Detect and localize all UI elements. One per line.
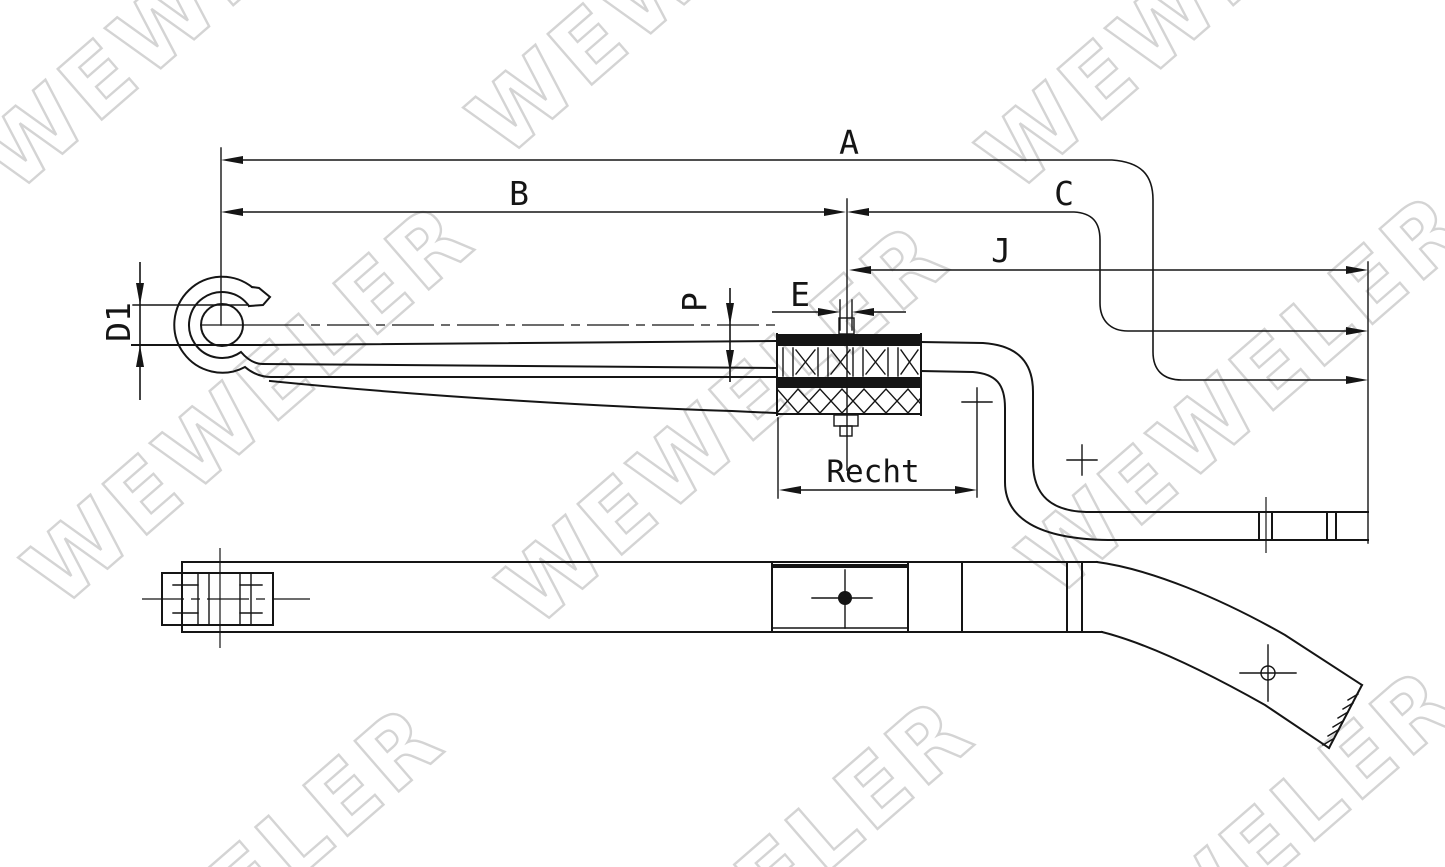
watermark-text: WEWELER — [999, 171, 1445, 617]
plan-center-bolt — [812, 570, 872, 628]
technical-drawing: WEWELER WEWELER WEWELER WEWELER WEWELER … — [0, 0, 1445, 867]
watermark-text: WEWELER — [4, 181, 494, 627]
dimension-label-e: E — [790, 275, 810, 314]
seat-top-plate — [776, 334, 922, 346]
plan-rear-hole — [1240, 645, 1296, 701]
dimension-label-a: A — [839, 123, 859, 162]
dimension-label-d1: D1 — [99, 302, 138, 342]
dimension-label-b: B — [509, 174, 529, 213]
blade-top-edge — [132, 341, 775, 345]
watermark-text: WEWELER — [959, 0, 1445, 212]
watermark-text: WEWELER — [449, 0, 939, 177]
bottom-view — [142, 548, 1362, 748]
rear-clamp-lines — [1259, 512, 1336, 540]
dimension-label-recht: Recht — [826, 454, 919, 490]
watermark-text: WEWELER — [0, 0, 449, 212]
watermark-text: WEWELER — [479, 201, 969, 647]
watermark-text: WEWELER — [0, 683, 464, 867]
drawing-page: WEWELER WEWELER WEWELER WEWELER WEWELER … — [0, 0, 1445, 867]
dimension-label-p: P — [675, 292, 714, 312]
dimension-label-j: J — [991, 231, 1011, 270]
watermark-layer: WEWELER WEWELER WEWELER WEWELER WEWELER … — [0, 0, 1445, 867]
dimension-b: B — [221, 174, 846, 216]
seat-mid-plate — [776, 377, 922, 388]
plan-axle-seat — [772, 562, 908, 632]
dimension-label-c: C — [1054, 174, 1074, 213]
eye-leaf-tip — [249, 287, 270, 306]
watermark-text: WEWELER — [504, 676, 994, 867]
